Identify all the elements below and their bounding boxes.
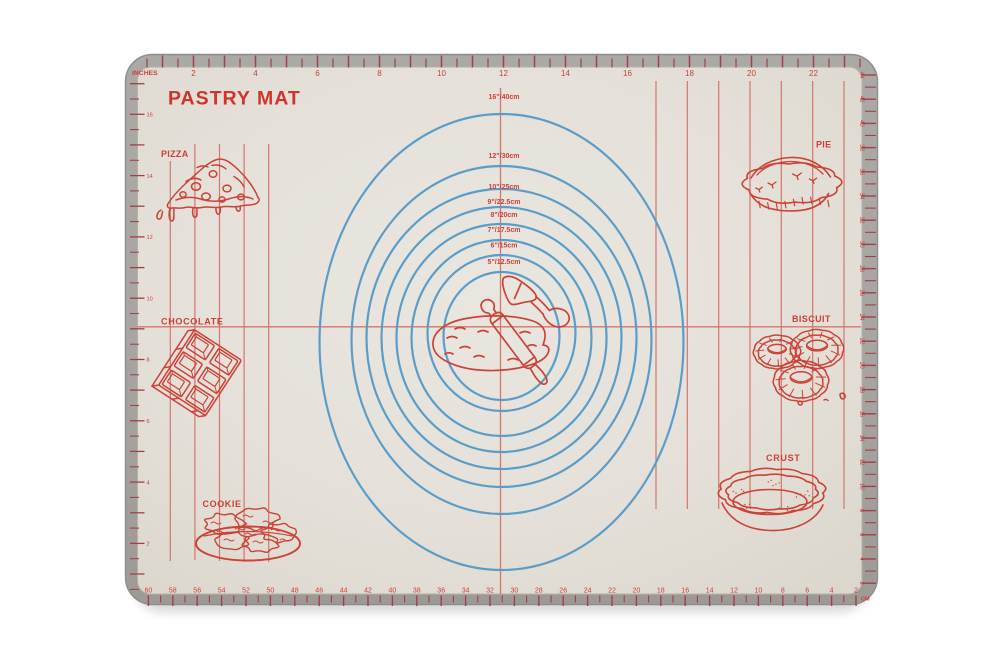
svg-text:54: 54	[218, 588, 226, 595]
svg-text:16: 16	[623, 69, 632, 78]
svg-text:6: 6	[315, 69, 320, 78]
svg-text:10: 10	[437, 69, 446, 78]
svg-text:40: 40	[858, 120, 864, 127]
svg-text:48: 48	[291, 588, 299, 595]
svg-text:44: 44	[340, 588, 348, 595]
svg-text:6: 6	[805, 588, 809, 595]
svg-text:38: 38	[413, 588, 421, 595]
svg-text:10: 10	[755, 588, 763, 595]
svg-text:12: 12	[147, 235, 153, 241]
svg-text:4: 4	[147, 480, 150, 486]
svg-text:22: 22	[809, 69, 818, 78]
svg-text:20: 20	[747, 69, 756, 78]
svg-text:CHOCOLATE: CHOCOLATE	[161, 317, 224, 327]
svg-text:20: 20	[633, 588, 641, 595]
svg-text:10"/25cm: 10"/25cm	[489, 184, 520, 191]
svg-text:CRUST: CRUST	[766, 453, 801, 463]
svg-text:36: 36	[858, 168, 864, 175]
svg-text:16"/40cm: 16"/40cm	[489, 94, 520, 101]
svg-text:42: 42	[858, 96, 864, 103]
svg-text:58: 58	[169, 588, 177, 595]
svg-text:44: 44	[858, 72, 864, 79]
svg-text:42: 42	[364, 588, 372, 595]
svg-text:14: 14	[147, 174, 153, 180]
svg-text:10: 10	[858, 483, 864, 490]
svg-text:10: 10	[147, 296, 153, 302]
svg-text:14: 14	[706, 588, 714, 595]
svg-text:46: 46	[315, 588, 323, 595]
svg-text:56: 56	[193, 588, 201, 595]
svg-text:8"/20cm: 8"/20cm	[490, 212, 517, 219]
svg-text:26: 26	[858, 289, 864, 296]
svg-text:PASTRY MAT: PASTRY MAT	[168, 88, 301, 110]
svg-text:14: 14	[858, 435, 864, 442]
svg-text:52: 52	[242, 588, 250, 595]
svg-text:22: 22	[608, 588, 616, 595]
svg-text:5"/12.5cm: 5"/12.5cm	[488, 259, 521, 266]
svg-text:4: 4	[253, 69, 258, 78]
svg-text:24: 24	[584, 588, 592, 595]
svg-text:8: 8	[377, 69, 382, 78]
svg-text:50: 50	[267, 588, 275, 595]
svg-text:12"/30cm: 12"/30cm	[489, 153, 520, 160]
svg-text:40: 40	[389, 588, 397, 595]
svg-text:20: 20	[858, 362, 864, 369]
svg-text:INCHES: INCHES	[132, 70, 158, 77]
svg-text:18: 18	[657, 588, 665, 595]
svg-text:2: 2	[191, 69, 196, 78]
svg-text:9"/22.5cm: 9"/22.5cm	[488, 199, 521, 206]
svg-text:38: 38	[858, 144, 864, 151]
svg-text:2: 2	[854, 588, 858, 595]
svg-text:16: 16	[681, 588, 689, 595]
svg-text:22: 22	[858, 338, 864, 345]
svg-text:60: 60	[145, 588, 153, 595]
svg-text:8: 8	[781, 588, 785, 595]
svg-text:7"/17.5cm: 7"/17.5cm	[488, 227, 521, 234]
svg-text:4: 4	[830, 588, 834, 595]
svg-text:28: 28	[535, 588, 543, 595]
svg-text:PIZZA: PIZZA	[161, 149, 189, 159]
svg-text:12: 12	[730, 588, 738, 595]
svg-text:28: 28	[858, 265, 864, 272]
svg-text:12: 12	[499, 69, 508, 78]
svg-text:34: 34	[858, 193, 864, 200]
svg-text:32: 32	[486, 588, 494, 595]
svg-text:30: 30	[858, 241, 864, 248]
svg-text:16: 16	[147, 113, 153, 119]
svg-text:PIE: PIE	[816, 140, 831, 150]
svg-text:26: 26	[559, 588, 567, 595]
svg-text:2: 2	[147, 542, 150, 548]
svg-text:24: 24	[858, 314, 864, 321]
svg-text:8: 8	[147, 358, 150, 364]
svg-text:COOKIE: COOKIE	[203, 499, 242, 509]
svg-text:14: 14	[561, 69, 570, 78]
svg-text:18: 18	[685, 69, 694, 78]
svg-text:BISCUIT: BISCUIT	[792, 314, 831, 324]
svg-text:16: 16	[858, 410, 864, 417]
svg-text:30: 30	[511, 588, 519, 595]
svg-text:34: 34	[462, 588, 470, 595]
svg-text:36: 36	[437, 588, 445, 595]
svg-text:6: 6	[147, 419, 150, 425]
svg-text:32: 32	[858, 217, 864, 224]
svg-text:CM: CM	[861, 597, 870, 603]
svg-text:12: 12	[858, 459, 864, 466]
svg-text:18: 18	[858, 386, 864, 393]
svg-text:6"/15cm: 6"/15cm	[490, 243, 517, 250]
